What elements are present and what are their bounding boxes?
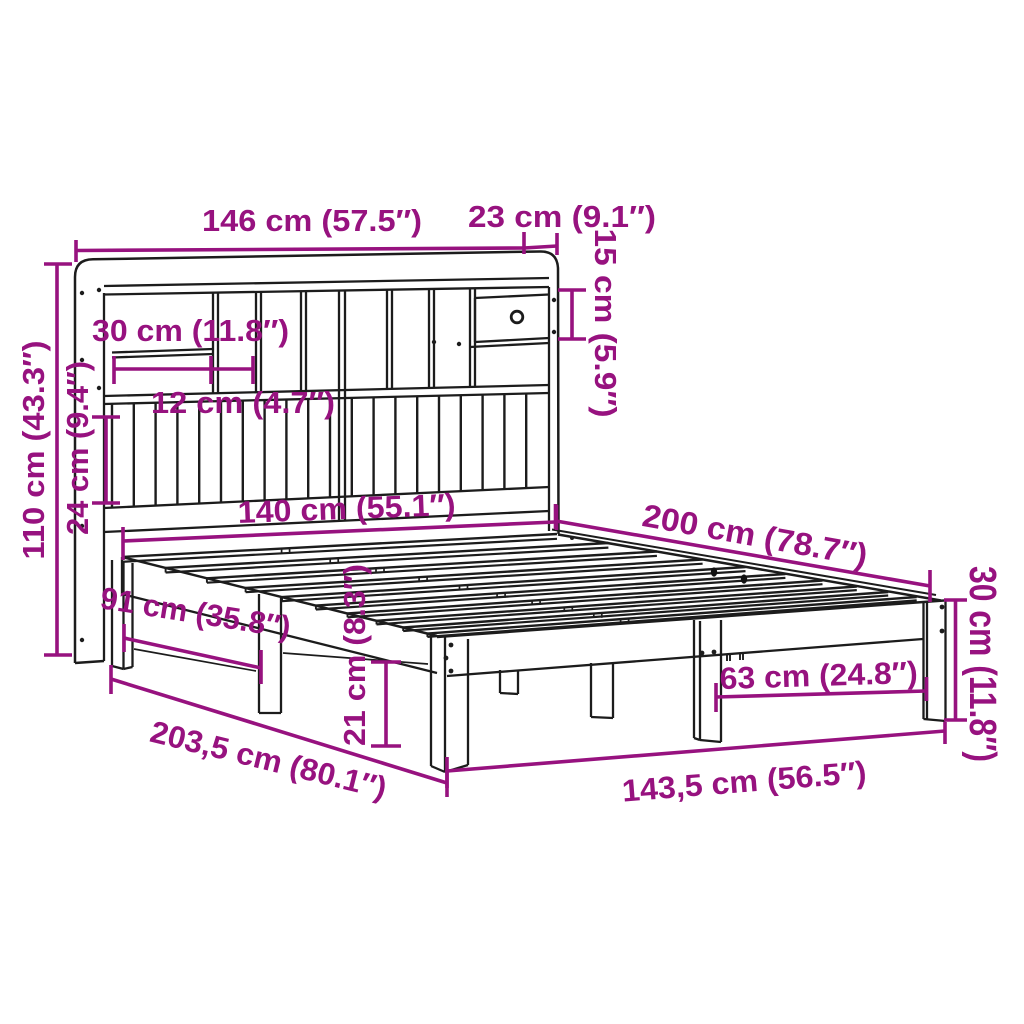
svg-text:21 cm (8.3″): 21 cm (8.3″) [337, 564, 372, 746]
svg-text:12 cm (4.7″): 12 cm (4.7″) [151, 385, 335, 420]
svg-text:24 cm (9.4″): 24 cm (9.4″) [60, 361, 95, 535]
svg-text:110 cm (43.3″): 110 cm (43.3″) [16, 341, 51, 560]
svg-text:146 cm (57.5″): 146 cm (57.5″) [202, 203, 422, 238]
svg-text:23 cm (9.1″): 23 cm (9.1″) [468, 199, 656, 234]
svg-text:140 cm (55.1″): 140 cm (55.1″) [237, 487, 456, 530]
svg-text:30 cm (11.8″): 30 cm (11.8″) [961, 566, 1003, 762]
svg-text:15 cm (5.9″): 15 cm (5.9″) [588, 229, 623, 418]
svg-text:30 cm (11.8″): 30 cm (11.8″) [92, 313, 289, 348]
svg-text:63 cm (24.8″): 63 cm (24.8″) [719, 655, 918, 696]
svg-text:143,5 cm (56.5″): 143,5 cm (56.5″) [621, 754, 868, 808]
